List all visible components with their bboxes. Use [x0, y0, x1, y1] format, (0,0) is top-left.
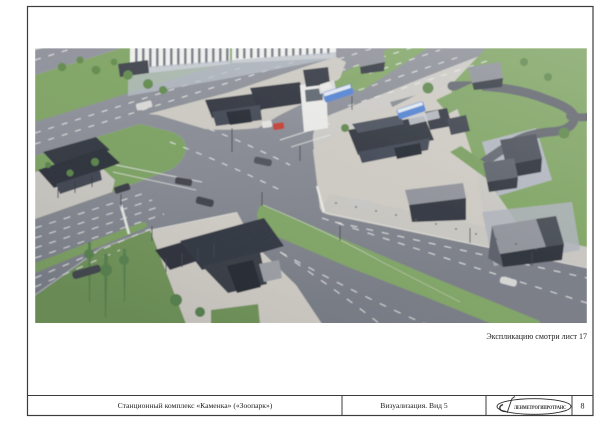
svg-text:8: 8 [581, 402, 585, 411]
svg-text:Экспликацию смотри лист 17: Экспликацию смотри лист 17 [486, 332, 587, 341]
svg-text:Визуализация. Вид 5: Визуализация. Вид 5 [380, 401, 448, 410]
svg-text:ЛЕНМЕТРОГИПРОТРАНС: ЛЕНМЕТРОГИПРОТРАНС [514, 406, 566, 411]
svg-text:Станционный комплекс «Каменка»: Станционный комплекс «Каменка» («Зоопарк… [118, 401, 273, 410]
